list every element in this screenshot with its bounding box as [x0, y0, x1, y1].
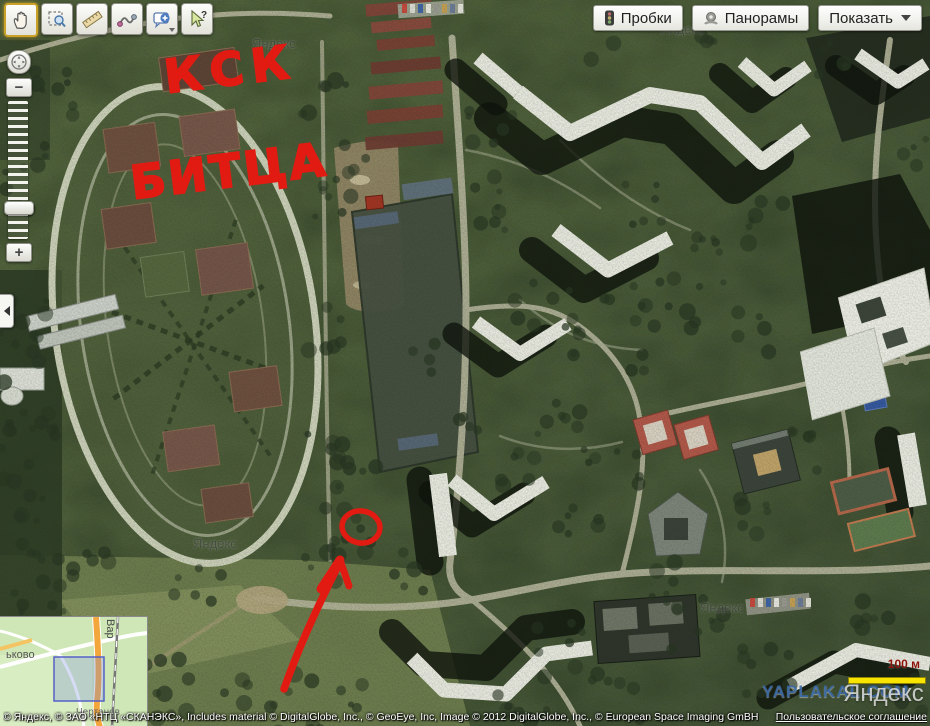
traffic-button[interactable]: Пробки	[593, 5, 683, 31]
yandex-maps-window: КСК БИТЦА Яндекс Яндекс Яндекс Яндекс YA…	[0, 0, 930, 726]
route-tool-button[interactable]	[111, 3, 143, 35]
user-agreement-link[interactable]: Пользовательское соглашение	[776, 711, 927, 723]
minimap-canvas	[0, 617, 147, 726]
svg-text:?: ?	[201, 10, 207, 21]
magnifier-select-tool-button[interactable]	[41, 3, 73, 35]
traffic-button-label: Пробки	[621, 10, 672, 27]
map-toolbar: ?	[4, 3, 213, 37]
add-placemark-tool-button[interactable]	[146, 3, 178, 35]
chevron-left-icon	[4, 306, 10, 316]
hand-tool-button[interactable]	[4, 3, 38, 37]
pan-compass-button[interactable]	[7, 50, 31, 74]
panoramas-button[interactable]: Панорамы	[692, 5, 810, 31]
copyright-text: © Яндекс, © ЗАО «НТЦ «СКАНЭКС», Includes…	[3, 711, 759, 723]
hand-icon	[10, 9, 32, 31]
inspector-arrow-icon: ?	[186, 8, 208, 30]
show-menu-button[interactable]: Показать	[818, 5, 922, 31]
route-icon	[116, 8, 138, 30]
magnifier-select-icon	[46, 8, 68, 30]
map-layer-buttons: Пробки Панорамы Показать	[593, 5, 922, 31]
zoom-control: − +	[5, 50, 35, 266]
panoramas-button-label: Панорамы	[725, 10, 799, 27]
sidebar-collapse-tab[interactable]	[0, 294, 14, 328]
zoom-slider-track[interactable]	[8, 101, 28, 239]
compass-pan-icon	[11, 54, 27, 70]
zoom-slider-handle[interactable]	[4, 201, 34, 215]
zoom-out-button[interactable]: −	[6, 78, 32, 97]
attribution-bar: © Яндекс, © ЗАО «НТЦ «СКАНЭКС», Includes…	[3, 711, 927, 723]
add-placemark-icon	[151, 8, 173, 30]
dropdown-arrow-icon	[901, 15, 911, 21]
show-menu-button-label: Показать	[829, 10, 893, 27]
inspector-tool-button[interactable]: ?	[181, 3, 213, 35]
panorama-icon	[703, 11, 719, 26]
minimap-viewport[interactable]	[54, 657, 104, 701]
ruler-icon	[81, 8, 103, 30]
add-placemark-dropdown-arrow[interactable]	[169, 28, 175, 32]
traffic-light-icon	[604, 10, 615, 26]
zoom-in-button[interactable]: +	[6, 243, 32, 262]
ruler-tool-button[interactable]	[76, 3, 108, 35]
overview-minimap[interactable]: ьково Вар Чертанов	[0, 616, 148, 726]
